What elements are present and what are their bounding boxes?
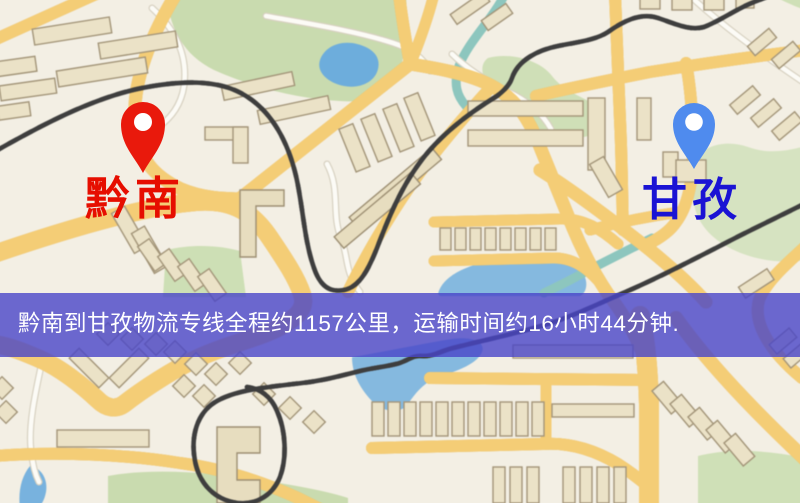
destination-label: 甘孜 xyxy=(642,173,742,226)
destination-pin-hole xyxy=(685,113,703,131)
banner-text: 黔南到甘孜物流专线全程约1157公里，运输时间约16小时44分钟. xyxy=(18,311,679,336)
map-canvas: 黔南 甘孜 黔南到甘孜物流专线全程约1157公里，运输时间约16小时44分钟. xyxy=(0,0,800,503)
route-info-banner: 黔南到甘孜物流专线全程约1157公里，运输时间约16小时44分钟. xyxy=(0,293,800,357)
origin-pin-hole xyxy=(134,113,152,131)
map-art-layer xyxy=(0,0,800,503)
origin-label: 黔南 xyxy=(85,172,185,225)
map-screenshot: 黔南 甘孜 黔南到甘孜物流专线全程约1157公里，运输时间约16小时44分钟. xyxy=(0,0,800,503)
